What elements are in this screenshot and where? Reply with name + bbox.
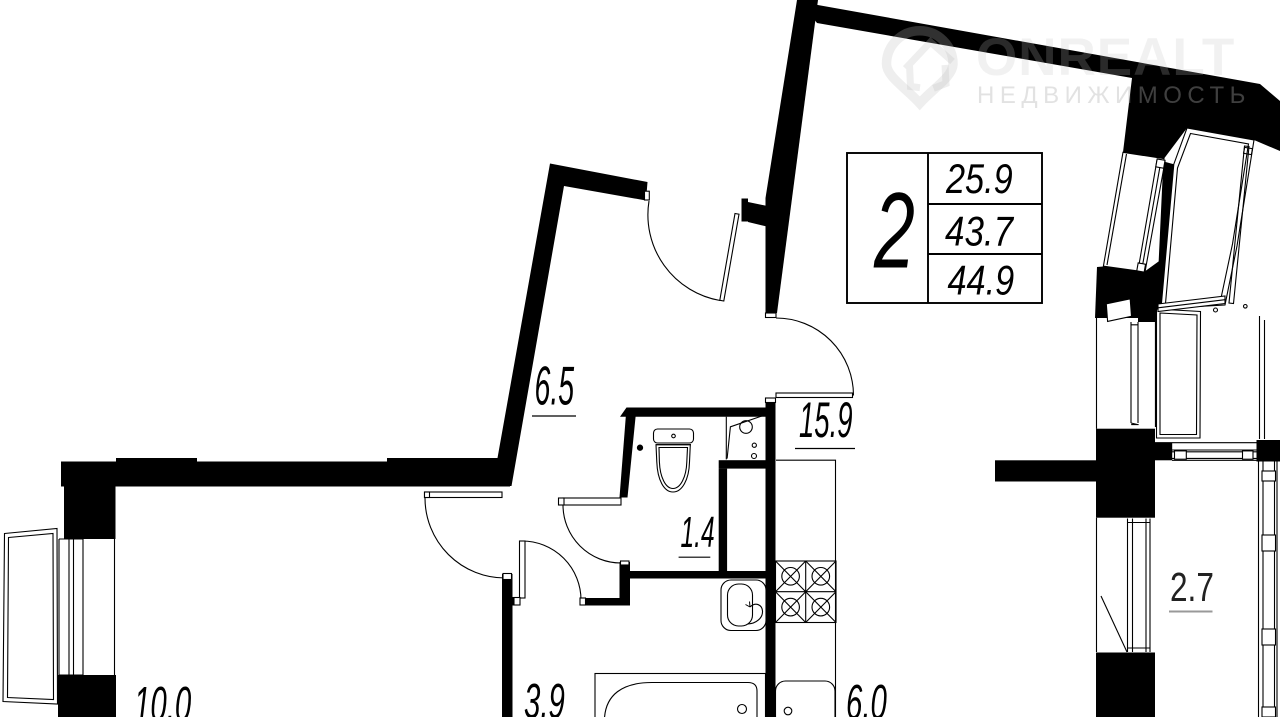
svg-text:15.9: 15.9 — [799, 391, 853, 448]
svg-text:НЕДВИЖИМОСТЬ: НЕДВИЖИМОСТЬ — [977, 82, 1251, 109]
svg-text:6.0: 6.0 — [846, 674, 887, 717]
svg-text:1.4: 1.4 — [681, 508, 715, 557]
svg-text:10.0: 10.0 — [134, 676, 192, 717]
svg-text:ONREALT: ONREALT — [976, 28, 1235, 87]
svg-text:44.9: 44.9 — [948, 259, 1015, 305]
svg-text:6.5: 6.5 — [535, 356, 575, 417]
svg-text:43.7: 43.7 — [945, 209, 1015, 255]
svg-text:3.9: 3.9 — [524, 673, 565, 717]
svg-text:2: 2 — [873, 169, 915, 291]
svg-text:2.7: 2.7 — [1170, 564, 1214, 610]
svg-text:25.9: 25.9 — [945, 157, 1013, 203]
